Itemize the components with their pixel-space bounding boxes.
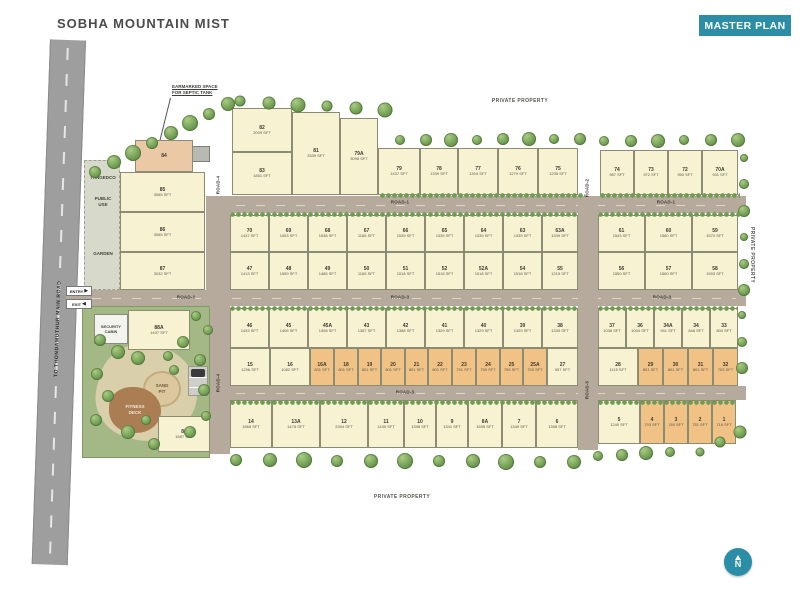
plot-10: 101398 SFT: [404, 400, 436, 448]
plot-87: 873032 SFT: [120, 252, 205, 290]
entry-gate: ENTRY ▶: [66, 286, 92, 296]
car-icon: [191, 369, 205, 377]
road-lower: [206, 386, 746, 400]
road-1: [206, 196, 746, 213]
road-3: [82, 290, 746, 306]
tree-icon: [350, 102, 363, 115]
road-centerline: [216, 393, 736, 394]
plot-8A: 8A1595 SFT: [468, 400, 502, 448]
tree-icon: [497, 133, 509, 145]
plot-14: 141865 SFT: [230, 400, 272, 448]
plot-60: 601580 SFT: [645, 215, 692, 252]
tree-icon: [433, 455, 445, 467]
plot-41: 411329 SFT: [425, 308, 464, 348]
plot-1: 1718 SFT: [712, 400, 736, 444]
hedge-row: [230, 400, 578, 405]
plot-39: 391329 SFT: [503, 308, 542, 348]
tree-icon: [534, 456, 546, 468]
tangedco-label: TANGEDCO: [90, 175, 115, 181]
plot-83: 831851 SFT: [232, 152, 292, 195]
tree-icon: [235, 96, 246, 107]
tree-icon: [665, 447, 675, 457]
tree-icon: [146, 137, 158, 149]
plot-37: 371038 SFT: [598, 308, 626, 348]
plot-28: 281115 SFT: [598, 348, 638, 386]
tree-icon: [696, 448, 705, 457]
plot-52: 521518 SFT: [425, 252, 464, 290]
plot-63: 631339 SFT: [503, 215, 542, 252]
plot-59: 591570 SFT: [692, 215, 738, 252]
plot-22: 22801 SFT: [428, 348, 452, 386]
plot-6: 61398 SFT: [536, 400, 578, 448]
main-road-label: TO THONDAMUTHUR MAIN ROAD: [53, 280, 62, 377]
plot-57: 571560 SFT: [645, 252, 692, 290]
parking-slot-line: [189, 387, 207, 388]
fitness-deck: FITNESS DECK: [109, 387, 161, 433]
plot-51: 511518 SFT: [386, 252, 425, 290]
tree-icon: [164, 126, 178, 140]
hedge-row: [598, 400, 735, 405]
tree-icon: [498, 454, 514, 470]
plot-68: 681538 SFT: [308, 215, 347, 252]
security-cabin: SECURITY CABIN: [94, 314, 128, 344]
plot-75: 751235 SFT: [538, 148, 578, 195]
plot-38: 381339 SFT: [542, 308, 578, 348]
plot-20: 20801 SFT: [381, 348, 405, 386]
plot-16A: 16A831 SFT: [310, 348, 334, 386]
tree-icon: [125, 145, 141, 161]
road-centerline: [216, 205, 736, 206]
private-property-top: PRIVATE PROPERTY: [492, 98, 548, 104]
tree-icon: [740, 154, 748, 162]
tree-icon: [331, 455, 343, 467]
compass-icon: N: [724, 548, 752, 576]
plot-34A: 34A941 SFT: [654, 308, 682, 348]
plot-67: 671185 SFT: [347, 215, 386, 252]
tree-icon: [574, 133, 586, 145]
tree-icon: [322, 101, 333, 112]
exit-arrow-icon: ◀: [82, 302, 86, 307]
septic-tank-structure: [186, 146, 210, 162]
tree-icon: [740, 233, 748, 241]
tree-icon: [466, 454, 480, 468]
tree-icon: [549, 134, 559, 144]
public-use-label: PUBLIC USE: [95, 196, 112, 208]
leader-line: [159, 98, 171, 141]
plot-49: 491485 SFT: [308, 252, 347, 290]
tree-icon: [705, 134, 717, 146]
plot-15: 151296 SFT: [230, 348, 270, 386]
plot-77: 771304 SFT: [458, 148, 498, 195]
tree-icon: [737, 337, 747, 347]
tree-icon: [651, 134, 665, 148]
tree-icon: [739, 259, 749, 269]
tree-icon: [420, 134, 432, 146]
plot-73: 73972 SFT: [634, 150, 668, 195]
plot-69: 691553 SFT: [269, 215, 308, 252]
road-centerline: [92, 298, 736, 299]
plot-70: 701437 SFT: [230, 215, 269, 252]
plot-21: 21801 SFT: [405, 348, 428, 386]
entry-arrow-icon: ▶: [84, 289, 88, 294]
plot-18: 18801 SFT: [334, 348, 358, 386]
tree-icon: [291, 97, 306, 112]
tree-icon: [625, 135, 637, 147]
tree-icon: [736, 362, 748, 374]
plot-81: 813339 SFT: [292, 112, 340, 195]
tree-icon: [599, 136, 609, 146]
plot-74: 74987 SFT: [600, 150, 634, 195]
tree-icon: [364, 454, 378, 468]
plot-25A: 25A793 SFT: [523, 348, 547, 386]
plot-32: 32793 SFT: [713, 348, 738, 386]
hedge-row: [598, 306, 738, 311]
road-label-road-2: ROAD-2: [585, 179, 590, 197]
plot-43: 431387 SFT: [347, 308, 386, 348]
tree-icon: [715, 437, 726, 448]
plot-79: 791437 SFT: [378, 148, 420, 195]
plot-2: 2751 SFT: [688, 400, 712, 444]
plot-56: 561550 SFT: [598, 252, 645, 290]
plot-24: 24759 SFT: [476, 348, 500, 386]
tree-icon: [263, 96, 276, 109]
hedge-row: [230, 306, 578, 311]
plot-86: 863065 SFT: [120, 212, 205, 252]
plot-45: 451406 SFT: [269, 308, 308, 348]
plot-13A: 13A1478 SFT: [272, 400, 320, 448]
tree-icon: [221, 97, 235, 111]
plot-65: 651339 SFT: [425, 215, 464, 252]
tree-icon: [734, 426, 747, 439]
road-5: [578, 196, 598, 450]
plot-47: 471413 SFT: [230, 252, 269, 290]
plot-33: 33800 SFT: [710, 308, 738, 348]
tree-icon: [739, 179, 749, 189]
plot-66: 661539 SFT: [386, 215, 425, 252]
tree-icon: [395, 135, 405, 145]
private-property-right: PRIVATE PROPERTY: [749, 227, 755, 283]
tree-icon: [738, 311, 746, 319]
plot-40: 401329 SFT: [464, 308, 503, 348]
plot-23: 23791 SFT: [452, 348, 476, 386]
plot-29: 29801 SFT: [638, 348, 663, 386]
plot-4: 4793 SFT: [640, 400, 664, 444]
plot-5: 51240 SFT: [598, 400, 640, 444]
tree-icon: [679, 135, 689, 145]
plot-27: 27657 SFT: [547, 348, 578, 386]
tree-icon: [639, 446, 653, 460]
plot-25: 25759 SFT: [500, 348, 523, 386]
master-plan-badge[interactable]: MASTER PLAN: [699, 15, 791, 36]
tree-icon: [296, 452, 312, 468]
plot-45A: 45A1308 SFT: [308, 308, 347, 348]
master-plan-canvas: SOBHA MOUNTAIN MIST MASTER PLAN TO THOND…: [0, 0, 800, 600]
plot-58: 581593 SFT: [692, 252, 738, 290]
road-label-road-4: ROAD-4: [216, 176, 221, 194]
tree-icon: [522, 132, 536, 146]
plot-78: 781339 SFT: [420, 148, 458, 195]
plot-52A: 52A1518 SFT: [464, 252, 503, 290]
plot-36: 361004 SFT: [626, 308, 654, 348]
plot-11: 111439 SFT: [368, 400, 404, 448]
tree-icon: [378, 103, 393, 118]
tree-icon: [203, 108, 215, 120]
page-title: SOBHA MOUNTAIN MIST: [57, 16, 230, 31]
septic-tank-note: EARMARKED SPACE FOR SEPTIC TANK: [172, 84, 218, 97]
plot-84: 84: [135, 140, 193, 172]
tree-icon: [593, 451, 603, 461]
plot-19: 19801 SFT: [358, 348, 381, 386]
tree-icon: [230, 454, 242, 466]
plot-9: 91341 SFT: [436, 400, 468, 448]
plot-76: 761279 SFT: [498, 148, 538, 195]
tree-icon: [472, 135, 482, 145]
plot-42: 421388 SFT: [386, 308, 425, 348]
plot-50: 501165 SFT: [347, 252, 386, 290]
plot-31: 31801 SFT: [688, 348, 713, 386]
plot-55: 551215 SFT: [542, 252, 578, 290]
plot-63A: 63A1339 SFT: [542, 215, 578, 252]
plot-64: 641339 SFT: [464, 215, 503, 252]
plot-3: 3760 SFT: [664, 400, 688, 444]
plot-79A: 79A3098 SFT: [340, 118, 378, 195]
plot-85: 853065 SFT: [120, 172, 205, 212]
plot-12: 122394 SFT: [320, 400, 368, 448]
plot-16: 161082 SFT: [270, 348, 310, 386]
tree-icon: [397, 453, 413, 469]
tree-icon: [731, 133, 745, 147]
tree-icon: [567, 455, 581, 469]
tree-icon: [444, 133, 458, 147]
tree-icon: [263, 453, 277, 467]
plot-54: 541518 SFT: [503, 252, 542, 290]
plot-30: 30801 SFT: [663, 348, 688, 386]
garden-label: GARDEN: [93, 251, 113, 257]
exit-gate: EXIT ◀: [66, 299, 92, 309]
plot-7: 71349 SFT: [502, 400, 536, 448]
plot-61: 611543 SFT: [598, 215, 645, 252]
tree-icon: [182, 115, 198, 131]
plot-72: 72950 SFT: [668, 150, 702, 195]
plot-34: 34848 SFT: [682, 308, 710, 348]
plot-70A: 70A931 SFT: [702, 150, 738, 195]
parking-slot-line: [189, 377, 207, 378]
private-property-bottom: PRIVATE PROPERTY: [374, 494, 430, 500]
plot-82: 822009 SFT: [232, 108, 292, 152]
plot-48: 481559 SFT: [269, 252, 308, 290]
tree-icon: [616, 449, 628, 461]
plot-46: 461433 SFT: [230, 308, 269, 348]
